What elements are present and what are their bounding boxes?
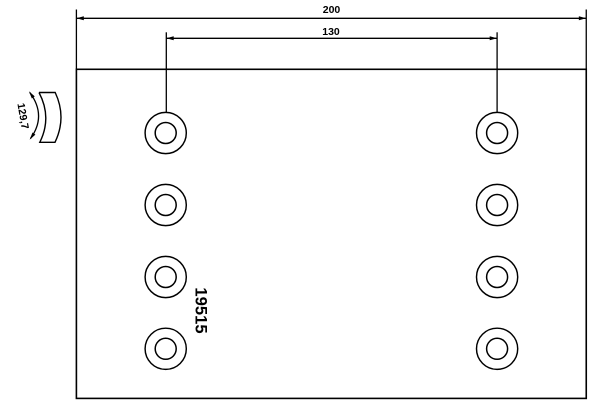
svg-text:129,7: 129,7	[14, 102, 30, 130]
svg-text:19515: 19515	[191, 287, 210, 333]
svg-text:130: 130	[322, 26, 340, 38]
svg-text:200: 200	[323, 4, 341, 16]
